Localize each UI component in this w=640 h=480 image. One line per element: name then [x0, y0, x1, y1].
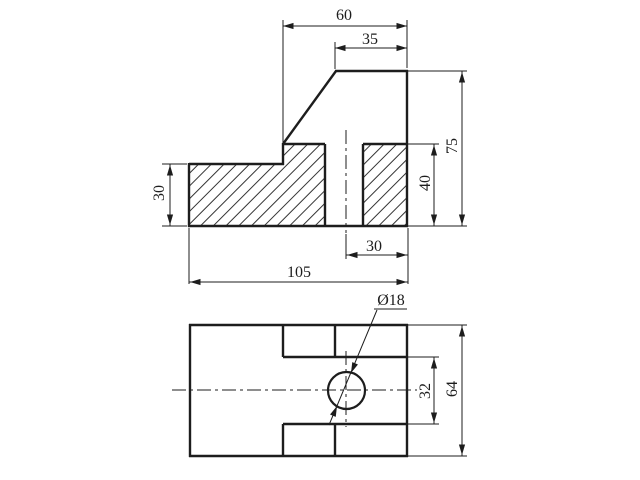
dim-label-32: 32 [417, 383, 434, 399]
section-hatching [189, 144, 407, 226]
outline-segment [283, 71, 336, 144]
dim-label-60: 60 [336, 7, 352, 24]
dim-label-105: 105 [287, 264, 311, 281]
dim-label-dia18: Ø18 [377, 292, 405, 309]
dimension-arrowhead [431, 145, 437, 156]
dimension-arrowhead [459, 215, 465, 226]
dim-label-75: 75 [444, 138, 461, 154]
dimension-arrowhead [167, 165, 173, 176]
hatch-region [189, 144, 325, 226]
dimension-arrowhead [167, 215, 173, 226]
dim-label-30: 30 [366, 238, 382, 255]
dimension-arrowhead [459, 445, 465, 456]
dim-label-30: 30 [151, 185, 168, 201]
dimension-arrowhead [190, 279, 201, 285]
dimension-arrowhead [347, 252, 358, 258]
dimension-arrowhead [283, 23, 294, 29]
dimension-arrowhead [397, 252, 408, 258]
dimension-arrowhead [335, 45, 346, 51]
dim-label-35: 35 [362, 31, 378, 48]
dim-label-40: 40 [417, 175, 434, 191]
dimension-arrowhead [431, 215, 437, 226]
dimension-arrowhead [397, 23, 408, 29]
dimension-arrowhead [431, 413, 437, 424]
dimension-arrowhead [397, 279, 408, 285]
dimension-arrowhead [397, 45, 408, 51]
dimension-arrowhead [459, 326, 465, 337]
dim-label-64: 64 [444, 381, 461, 397]
dimension-arrowhead [459, 72, 465, 83]
engineering-drawing: 603575403030105Ø183264 [0, 0, 640, 480]
drawing-sheet: 603575403030105Ø183264 [0, 0, 640, 480]
hatch-region [363, 144, 407, 226]
dimension-arrowhead [431, 358, 437, 369]
